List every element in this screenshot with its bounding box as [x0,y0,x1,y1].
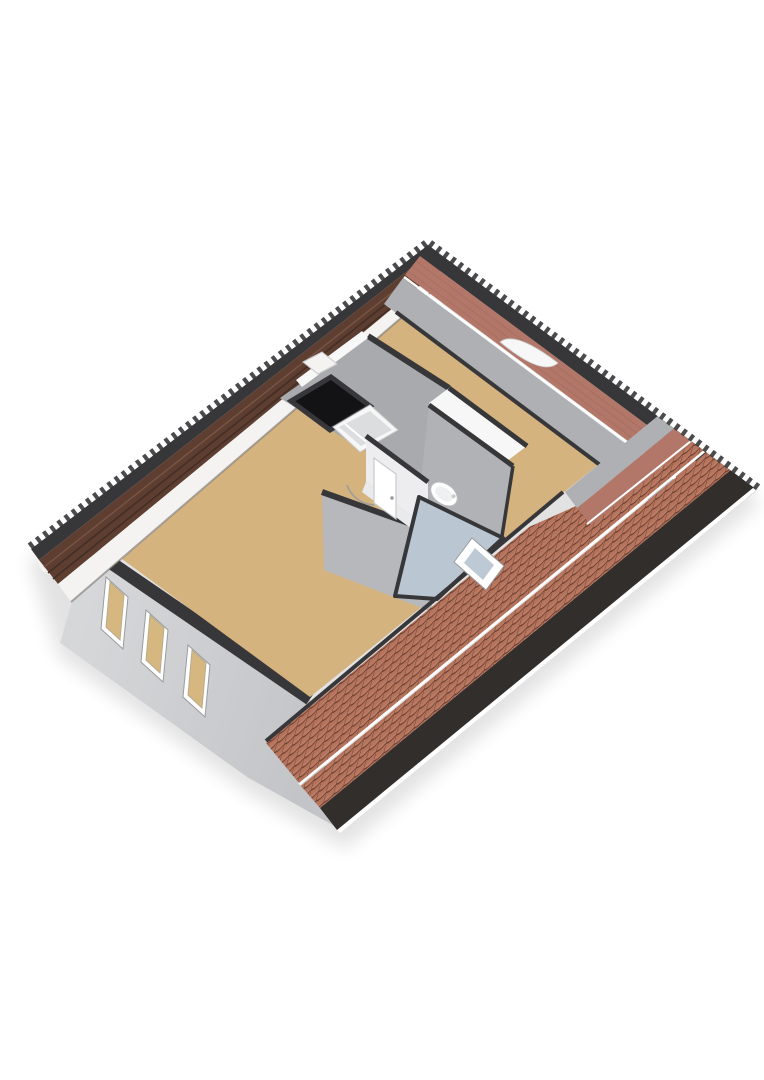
door-handle [390,496,394,500]
floorplan-canvas [0,0,764,1080]
floorplan-viewer [0,0,764,1080]
